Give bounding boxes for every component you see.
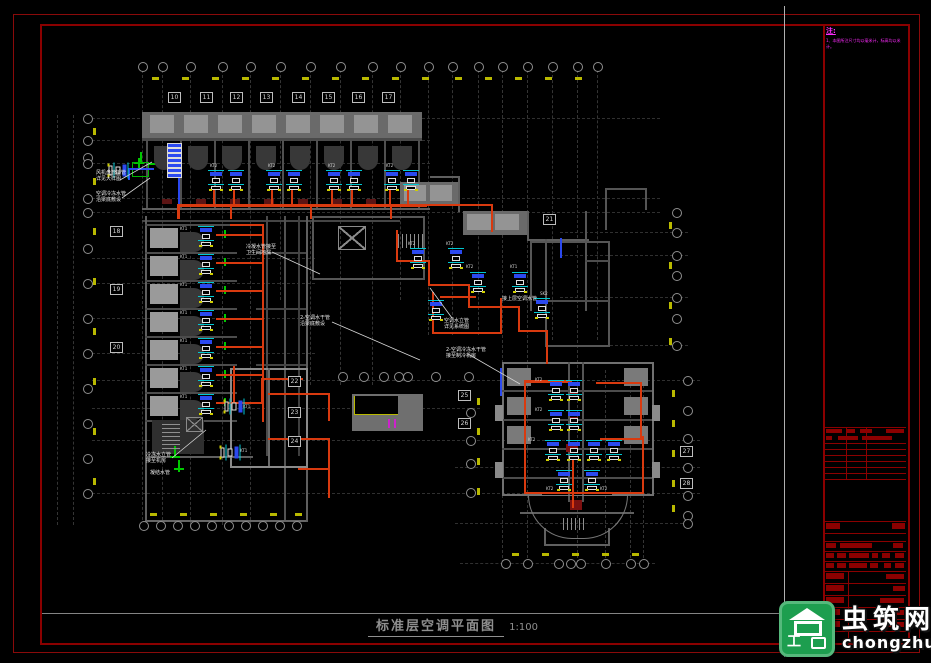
drawing-scale: 1:100 xyxy=(509,622,538,633)
watermark-site-name: 虫筑网 xyxy=(842,607,931,633)
watermark-texts: 虫筑网 chongzhu.cn xyxy=(842,607,931,652)
watermark: 工 虫筑网 chongzhu.cn xyxy=(779,601,931,657)
leader-line xyxy=(272,252,320,274)
leader-line xyxy=(172,430,206,458)
face-icon xyxy=(811,637,826,649)
leader-lines xyxy=(0,0,931,663)
gong-glyph: 工 xyxy=(787,635,801,649)
watermark-site-url: chongzhu.cn xyxy=(842,633,931,652)
leader-line xyxy=(332,322,420,360)
house-roof-icon xyxy=(789,608,825,620)
leader-line xyxy=(120,162,152,180)
leader-line xyxy=(468,354,520,384)
drawing-sheet: 注: 1、本图所注尺寸均以毫米计，标高均以米计。 101112131415161… xyxy=(0,0,931,663)
leader-line xyxy=(122,178,150,198)
watermark-logo-icon: 工 xyxy=(779,601,835,657)
drawing-title-text: 标准层空调平面图 xyxy=(368,619,504,637)
leader-line xyxy=(430,288,452,318)
drawing-title: 标准层空调平面图 1:100 xyxy=(368,615,538,634)
